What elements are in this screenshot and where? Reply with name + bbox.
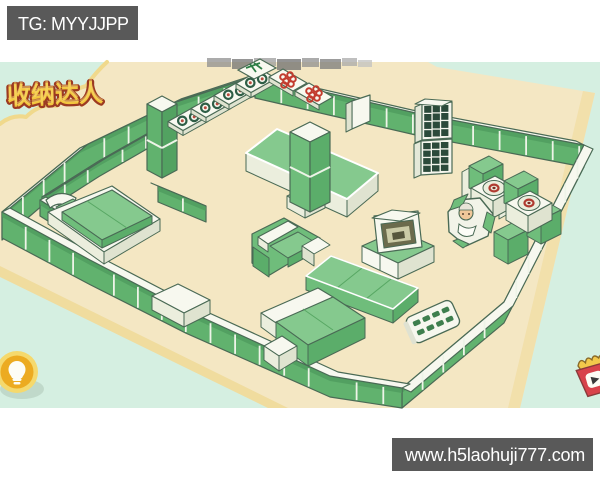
svg-text:收纳达人: 收纳达人 [6, 77, 103, 108]
svg-text:www.h5laohuji777.com: www.h5laohuji777.com [404, 445, 585, 465]
svg-text:TG: MYYJJPP: TG: MYYJJPP [18, 14, 129, 34]
